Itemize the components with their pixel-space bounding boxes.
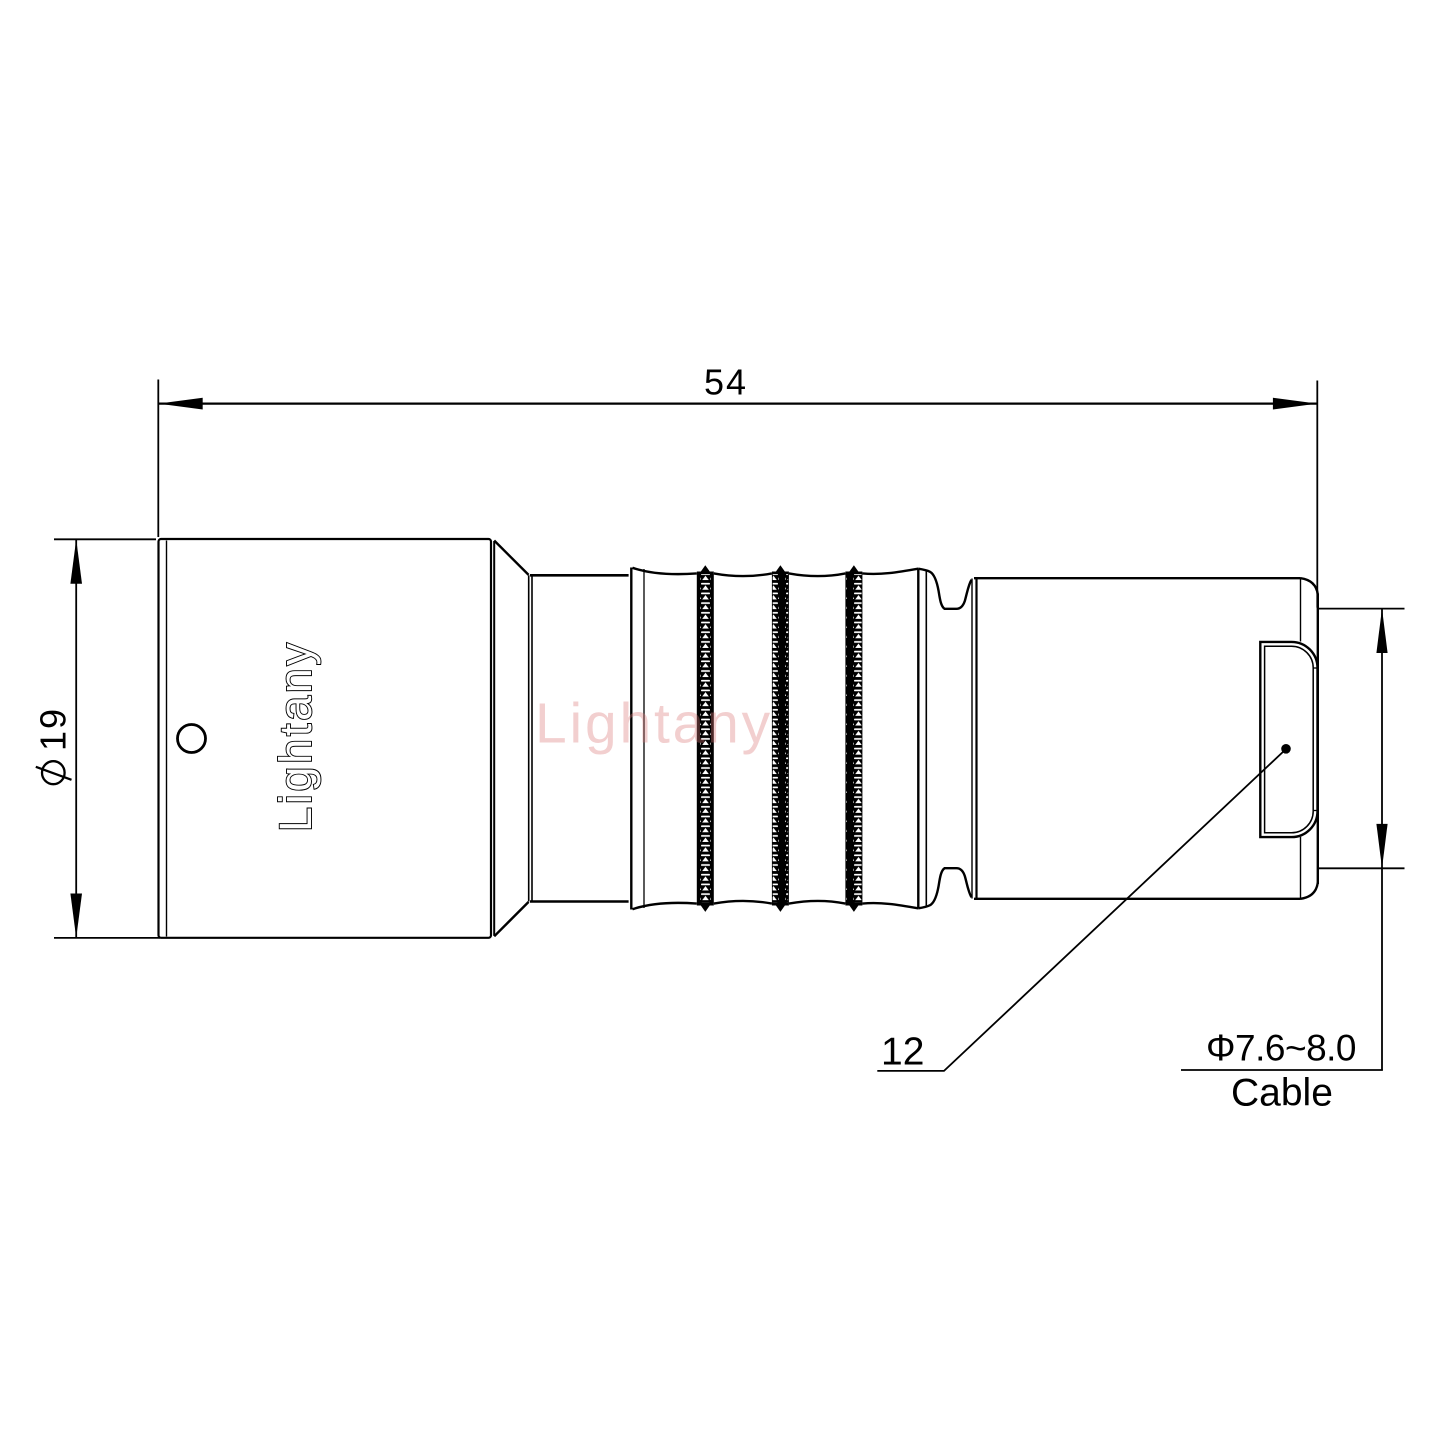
svg-text:Lightany: Lightany — [535, 692, 773, 756]
svg-text:Lightany: Lightany — [270, 640, 321, 832]
svg-text:Cable: Cable — [1231, 1072, 1333, 1115]
svg-text:19: 19 — [33, 707, 74, 751]
svg-text:54: 54 — [704, 362, 748, 403]
svg-text:Φ7.6~8.0: Φ7.6~8.0 — [1206, 1028, 1356, 1069]
svg-text:12: 12 — [881, 1031, 924, 1074]
